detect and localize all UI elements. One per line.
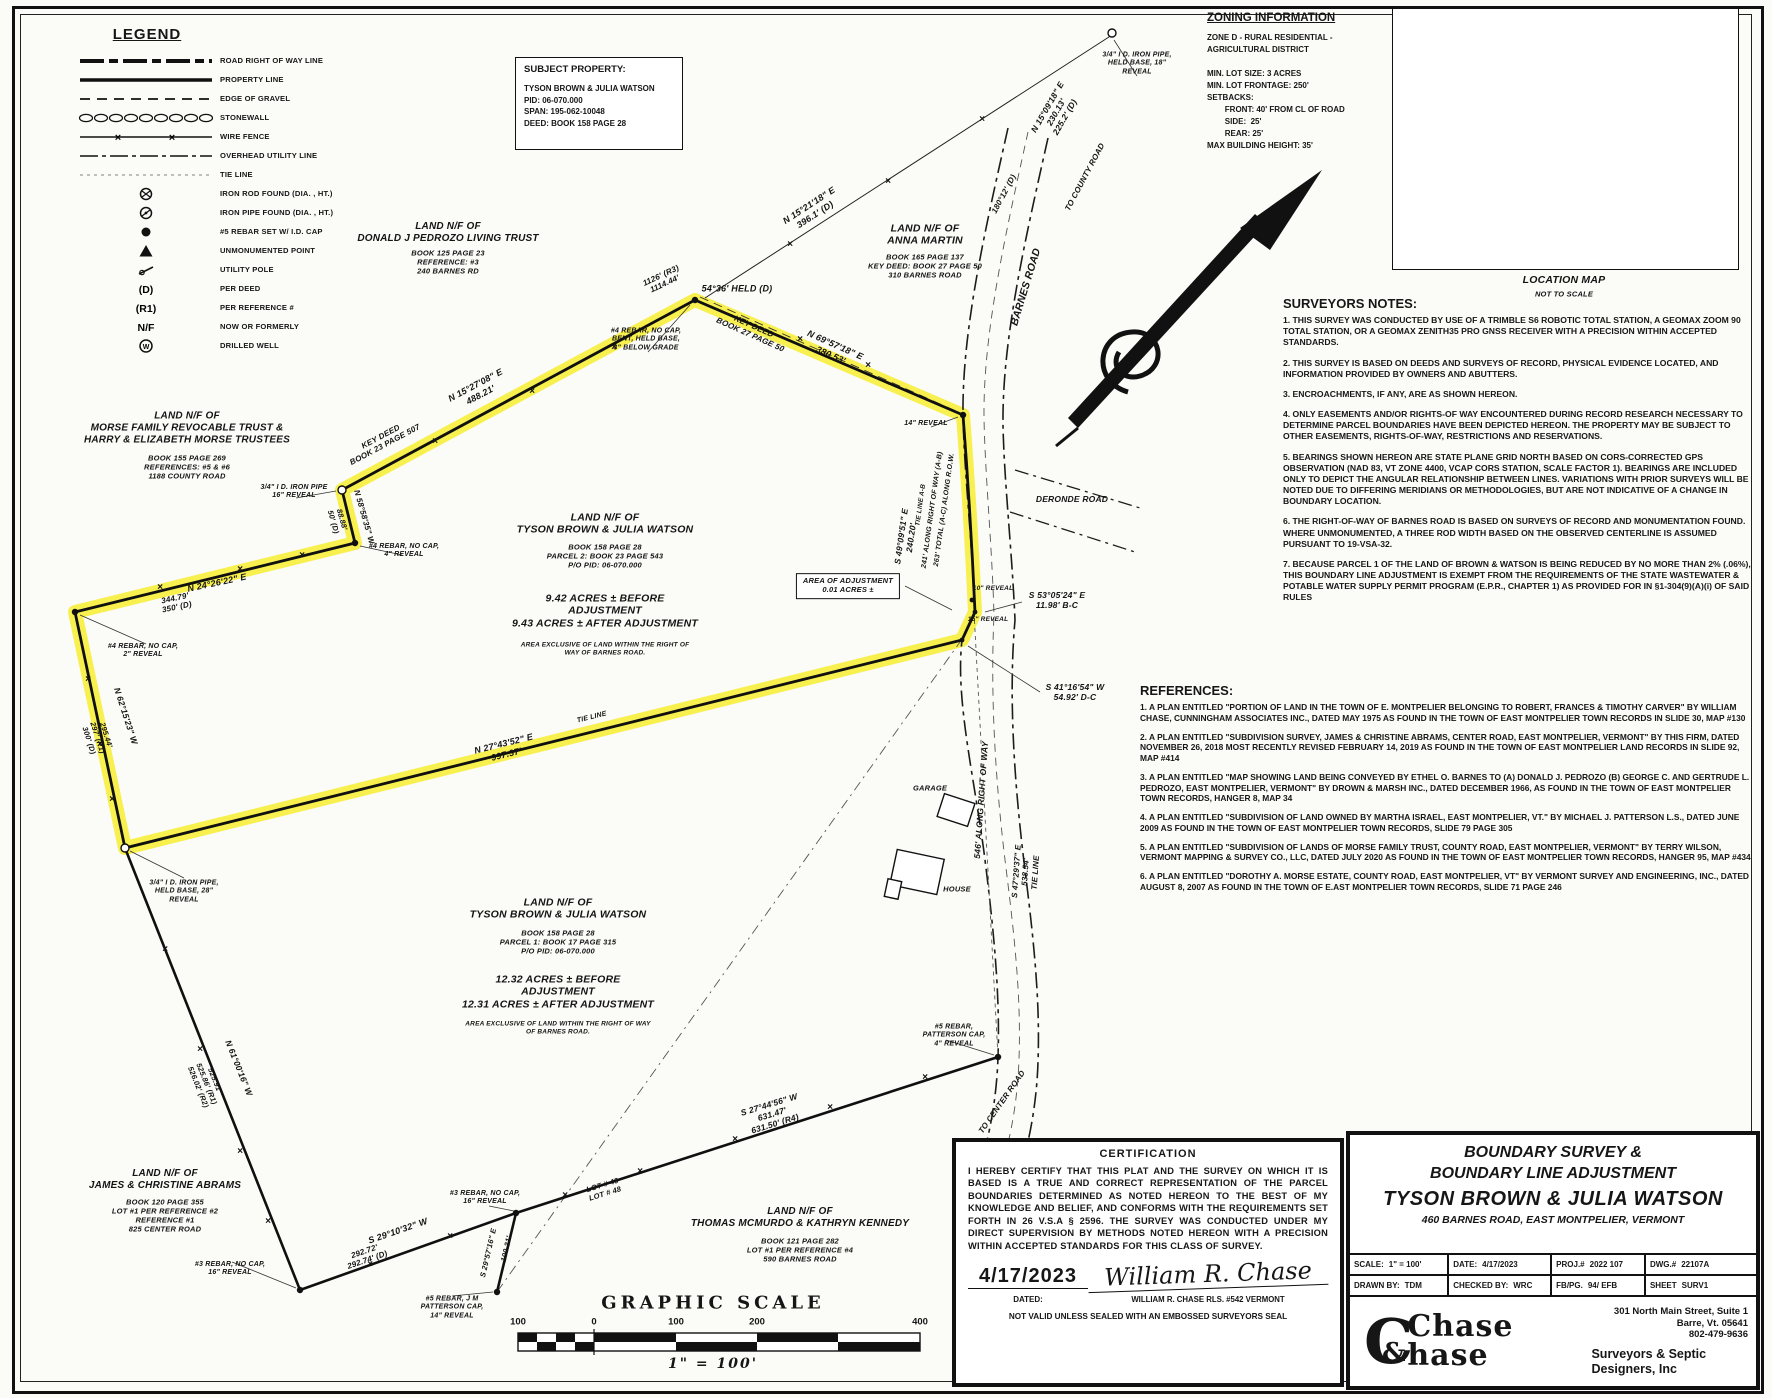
legend-symbol-stonewall: [72, 110, 220, 126]
certification-signature-row: 4/17/2023 DATED: William R. Chase WILLIA…: [968, 1260, 1328, 1307]
svg-text:W: W: [143, 344, 150, 351]
legend-item: OVERHEAD UTILITY LINE: [72, 146, 372, 165]
plat-type-line2: BOUNDARY LINE ADJUSTMENT: [1350, 1164, 1756, 1185]
legend-symbol-rebar: [72, 224, 220, 240]
logo-big-c: C&: [1364, 1317, 1413, 1367]
svg-text:×: ×: [169, 132, 175, 144]
svg-text:N/F: N/F: [138, 322, 156, 334]
references-list: 1. A PLAN ENTITLED "PORTION OF LAND IN T…: [1140, 702, 1754, 893]
zoning-line: AGRICULTURAL DISTRICT: [1207, 44, 1389, 56]
title-block-field: CHECKED BY:WRC: [1449, 1276, 1552, 1295]
zoning-line: ZONE D - RURAL RESIDENTIAL -: [1207, 32, 1389, 44]
legend-symbol-utility: [72, 148, 220, 164]
zoning-line: [1207, 56, 1389, 68]
subject-property-line: TYSON BROWN & JULIA WATSON: [524, 83, 674, 95]
title-block-field: DWG.#22107A: [1646, 1255, 1756, 1274]
zoning-line: MAX BUILDING HEIGHT: 35': [1207, 140, 1389, 152]
legend-item: IRON ROD FOUND (DIA. , HT.): [72, 184, 372, 203]
firm-contact: 301 North Main Street, Suite 1Barre, Vt.…: [1513, 1306, 1748, 1378]
legend-panel: LEGEND ROAD RIGHT OF WAY LINEPROPERTY LI…: [72, 26, 372, 355]
references-panel: REFERENCES: 1. A PLAN ENTITLED "PORTION …: [1140, 683, 1754, 901]
legend-item: (D)PER DEED: [72, 279, 372, 298]
surveyor-note: 6. THE RIGHT-OF-WAY OF BARNES ROAD IS BA…: [1283, 516, 1755, 550]
surveyor-note: 4. ONLY EASEMENTS AND/OR RIGHTS-OF WAY E…: [1283, 409, 1755, 443]
field-value: SURV1: [1682, 1281, 1709, 1290]
legend-item-label: UTILITY POLE: [220, 265, 274, 274]
reference-item: 1. A PLAN ENTITLED "PORTION OF LAND IN T…: [1140, 702, 1754, 724]
field-label: SHEET: [1650, 1281, 1677, 1290]
graphic-scale-title: GRAPHIC SCALE: [601, 1293, 825, 1314]
legend-item-label: IRON ROD FOUND (DIA. , HT.): [220, 189, 333, 198]
deed-line-396: [705, 35, 1112, 298]
svg-text:(R1): (R1): [136, 303, 156, 315]
legend-item: ROAD RIGHT OF WAY LINE: [72, 51, 372, 70]
legend-item-label: ROAD RIGHT OF WAY LINE: [220, 56, 323, 65]
legend-symbol-gravel: [72, 91, 220, 107]
firm-address-line: 301 North Main Street, Suite 1: [1513, 1306, 1748, 1318]
zoning-line: FRONT: 40' FROM CL OF ROAD: [1207, 104, 1389, 116]
tie-lines: [497, 297, 998, 1292]
graphic-scale-ratio: 1" = 100': [668, 1356, 758, 1372]
legend-item-label: WIRE FENCE: [220, 132, 270, 141]
legend-symbol-text-r1: (R1): [72, 300, 220, 316]
legend-item-label: OVERHEAD UTILITY LINE: [220, 151, 317, 160]
title-block-field: DRAWN BY:TDM: [1350, 1276, 1449, 1295]
surveyor-note: 7. BECAUSE PARCEL 1 OF THE LAND OF BROWN…: [1283, 559, 1755, 604]
graphic-scale-bar: [518, 1329, 920, 1355]
svg-text:×: ×: [115, 132, 121, 144]
subject-property-title: SUBJECT PROPERTY:: [524, 64, 674, 75]
certification-body: I HEREBY CERTIFY THAT THIS PLAT AND THE …: [968, 1165, 1328, 1252]
legend-item-label: PROPERTY LINE: [220, 75, 284, 84]
surveyors-notes-panel: SURVEYORS NOTES: 1. THIS SURVEY WAS COND…: [1283, 296, 1755, 613]
buildings: [884, 794, 975, 900]
zoning-line: MIN. LOT FRONTAGE: 250': [1207, 80, 1389, 92]
zoning-title: ZONING INFORMATION: [1207, 12, 1389, 24]
plat-owner: TYSON BROWN & JULIA WATSON: [1350, 1188, 1756, 1211]
field-label: PROJ.#: [1556, 1260, 1584, 1269]
firm-name-line: Surveyors & Septic: [1591, 1347, 1748, 1362]
zoning-line: REAR: 25': [1207, 128, 1389, 140]
subject-property-box: SUBJECT PROPERTY: TYSON BROWN & JULIA WA…: [515, 57, 683, 150]
field-label: DRAWN BY:: [1354, 1281, 1400, 1290]
certification-dated-label: DATED:: [1013, 1295, 1043, 1304]
field-label: CHECKED BY:: [1453, 1281, 1508, 1290]
subject-property-lines: TYSON BROWN & JULIA WATSONPID: 06-070.00…: [524, 83, 674, 129]
legend-symbol-wire: ××: [72, 129, 220, 145]
firm-address-line: Barre, Vt. 05641: [1513, 1318, 1748, 1330]
reference-item: 6. A PLAN ENTITLED "DOROTHY A. MORSE EST…: [1140, 871, 1754, 893]
title-block-heading: BOUNDARY SURVEY & BOUNDARY LINE ADJUSTME…: [1350, 1135, 1756, 1255]
graphic-scale-tick: 200: [749, 1317, 765, 1328]
field-label: SCALE:: [1354, 1260, 1384, 1269]
certification-title: CERTIFICATION: [968, 1148, 1328, 1160]
legend-symbol-property: [72, 72, 220, 88]
logo-words: Chase hase: [1407, 1313, 1513, 1370]
field-value: WRC: [1513, 1281, 1532, 1290]
plat-type-line1: BOUNDARY SURVEY &: [1350, 1143, 1756, 1164]
legend-items: ROAD RIGHT OF WAY LINEPROPERTY LINEEDGE …: [72, 51, 372, 355]
reference-item: 2. A PLAN ENTITLED "SUBDIVISION SURVEY, …: [1140, 732, 1754, 764]
graphic-scale-tick: 100: [668, 1317, 684, 1328]
legend-item-label: DRILLED WELL: [220, 341, 279, 350]
legend-item-label: IRON PIPE FOUND (DIA. , HT.): [220, 208, 333, 217]
zoning-line: SIDE: 25': [1207, 116, 1389, 128]
legend-item: EDGE OF GRAVEL: [72, 89, 372, 108]
logo-ampersand: &: [1382, 1343, 1405, 1364]
field-value: 4/17/2023: [1482, 1260, 1518, 1269]
legend-item-label: STONEWALL: [220, 113, 269, 122]
legend-item-label: PER REFERENCE #: [220, 303, 294, 312]
legend-item: #5 REBAR SET W/ I.D. CAP: [72, 222, 372, 241]
zoning-panel: ZONING INFORMATION ZONE D - RURAL RESIDE…: [1207, 12, 1389, 152]
surveyor-signature: William R. Chase: [1088, 1256, 1329, 1293]
legend-item: TIE LINE: [72, 165, 372, 184]
legend-item-label: UNMONUMENTED POINT: [220, 246, 315, 255]
field-label: DATE:: [1453, 1260, 1477, 1269]
surveyors-notes-list: 1. THIS SURVEY WAS CONDUCTED BY USE OF A…: [1283, 315, 1755, 604]
legend-item: ××WIRE FENCE: [72, 127, 372, 146]
legend-item: UNMONUMENTED POINT: [72, 241, 372, 260]
legend-title: LEGEND: [72, 26, 222, 43]
title-block: BOUNDARY SURVEY & BOUNDARY LINE ADJUSTME…: [1346, 1131, 1760, 1390]
certification-seal-note: NOT VALID UNLESS SEALED WITH AN EMBOSSED…: [968, 1312, 1328, 1321]
plat-address: 460 BARNES ROAD, EAST MONTPELIER, VERMON…: [1350, 1214, 1756, 1226]
logo-word-2: hase: [1407, 1342, 1513, 1371]
legend-item-label: EDGE OF GRAVEL: [220, 94, 290, 103]
title-block-field: SCALE:1" = 100': [1350, 1255, 1449, 1274]
legend-symbol-tie: [72, 167, 220, 183]
title-block-field: FB/PG.94/ EFB: [1552, 1276, 1646, 1295]
subject-property-line: PID: 06-070.000: [524, 95, 674, 107]
surveyors-notes-title: SURVEYORS NOTES:: [1283, 296, 1755, 311]
title-block-row-1: SCALE:1" = 100'DATE:4/17/2023PROJ.#2022 …: [1350, 1255, 1756, 1276]
graphic-scale-tick: 0: [591, 1317, 596, 1328]
chase-and-chase-logo: C& Chase hase: [1364, 1313, 1513, 1370]
surveyor-note: 2. THIS SURVEY IS BASED ON DEEDS AND SUR…: [1283, 358, 1755, 380]
graphic-scale-tick: 100: [510, 1317, 526, 1328]
graphic-scale-tick: 400: [912, 1317, 928, 1328]
zoning-lines: ZONE D - RURAL RESIDENTIAL -AGRICULTURAL…: [1207, 32, 1389, 152]
firm-name-line: Designers, Inc: [1591, 1362, 1748, 1377]
surveyor-note: 1. THIS SURVEY WAS CONDUCTED BY USE OF A…: [1283, 315, 1755, 349]
field-value: 1" = 100': [1389, 1260, 1422, 1269]
field-label: DWG.#: [1650, 1260, 1676, 1269]
legend-item: PROPERTY LINE: [72, 70, 372, 89]
svg-text:(D): (D): [139, 284, 154, 296]
field-label: FB/PG.: [1556, 1281, 1583, 1290]
reference-item: 4. A PLAN ENTITLED "SUBDIVISION OF LAND …: [1140, 812, 1754, 834]
legend-item: WDRILLED WELL: [72, 336, 372, 355]
zoning-line: SETBACKS:: [1207, 92, 1389, 104]
title-block-field: DATE:4/17/2023: [1449, 1255, 1552, 1274]
certification-date: 4/17/2023: [968, 1265, 1088, 1289]
location-map-frame: [1392, 8, 1739, 270]
title-block-field: SHEETSURV1: [1646, 1276, 1756, 1295]
legend-item: IRON PIPE FOUND (DIA. , HT.): [72, 203, 372, 222]
legend-item-label: PER DEED: [220, 284, 260, 293]
zoning-line: MIN. LOT SIZE: 3 ACRES: [1207, 68, 1389, 80]
title-block-row-2: DRAWN BY:TDMCHECKED BY:WRCFB/PG.94/ EFBS…: [1350, 1276, 1756, 1297]
legend-symbol-iron-pipe: [72, 205, 220, 221]
subject-property-line: DEED: BOOK 158 PAGE 28: [524, 118, 674, 130]
legend-symbol-text-nf: N/F: [72, 319, 220, 335]
legend-symbol-text-d: (D): [72, 281, 220, 297]
legend-symbol-iron-rod: [72, 186, 220, 202]
legend-symbol-well: W: [72, 338, 220, 354]
legend-symbol-unmon: [72, 243, 220, 259]
field-value: 2022 107: [1590, 1260, 1623, 1269]
surveyor-name-line: WILLIAM R. CHASE RLS. #542 VERMONT: [1131, 1295, 1284, 1304]
surveyor-note: 3. ENCROACHMENTS, IF ANY, ARE AS SHOWN H…: [1283, 389, 1755, 400]
reference-item: 3. A PLAN ENTITLED "MAP SHOWING LAND BEI…: [1140, 772, 1754, 804]
certification-box: CERTIFICATION I HEREBY CERTIFY THAT THIS…: [952, 1138, 1344, 1387]
property-lines: [75, 300, 998, 1292]
reference-item: 5. A PLAN ENTITLED "SUBDIVISION OF LANDS…: [1140, 842, 1754, 864]
surveyor-note: 5. BEARINGS SHOWN HEREON ARE STATE PLANE…: [1283, 452, 1755, 508]
firm-address: 301 North Main Street, Suite 1Barre, Vt.…: [1513, 1306, 1748, 1342]
field-value: 94/ EFB: [1588, 1281, 1617, 1290]
legend-item-label: #5 REBAR SET W/ I.D. CAP: [220, 227, 323, 236]
legend-symbol-pole: [72, 262, 220, 278]
field-value: TDM: [1405, 1281, 1422, 1290]
legend-symbol-row: [72, 53, 220, 69]
legend-item-label: TIE LINE: [220, 170, 253, 179]
highlight-boundary: [75, 300, 975, 848]
firm-name: Surveyors & SepticDesigners, Inc: [1591, 1347, 1748, 1377]
legend-item: STONEWALL: [72, 108, 372, 127]
legend-item: N/FNOW OR FORMERLY: [72, 317, 372, 336]
legend-item: UTILITY POLE: [72, 260, 372, 279]
subject-property-line: SPAN: 195-062-10048: [524, 106, 674, 118]
legend-item-label: NOW OR FORMERLY: [220, 322, 299, 331]
firm-address-line: 802-479-9636: [1513, 1329, 1748, 1341]
references-title: REFERENCES:: [1140, 683, 1754, 698]
legend-item: (R1)PER REFERENCE #: [72, 298, 372, 317]
title-block-field: PROJ.#2022 107: [1552, 1255, 1646, 1274]
survey-plat-sheet: LAND N/F OF DONALD J PEDROZO LIVING TRUS…: [0, 0, 1772, 1398]
firm-block: C& Chase hase 301 North Main Street, Sui…: [1350, 1297, 1756, 1386]
garage-footprint: [937, 794, 975, 827]
field-value: 22107A: [1681, 1260, 1709, 1269]
